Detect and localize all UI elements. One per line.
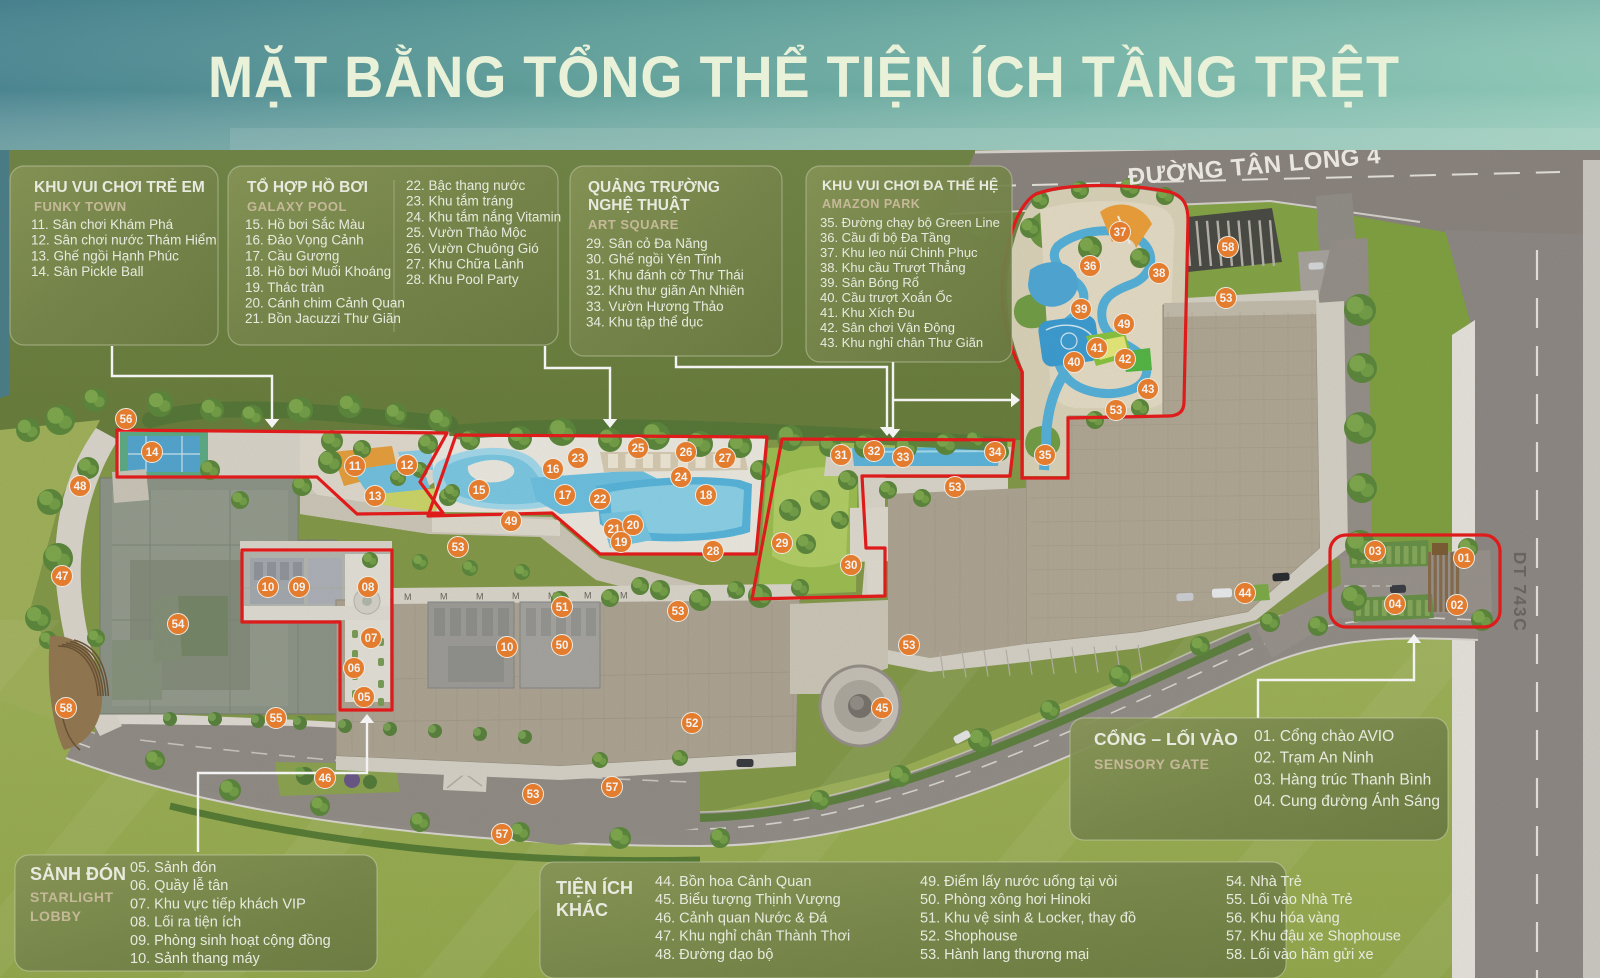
- svg-text:MẶT BẰNG TỔNG THỂ TIỆN ÍCH TẦN: MẶT BẰNG TỔNG THỂ TIỆN ÍCH TẦNG TRỆT: [208, 45, 1400, 110]
